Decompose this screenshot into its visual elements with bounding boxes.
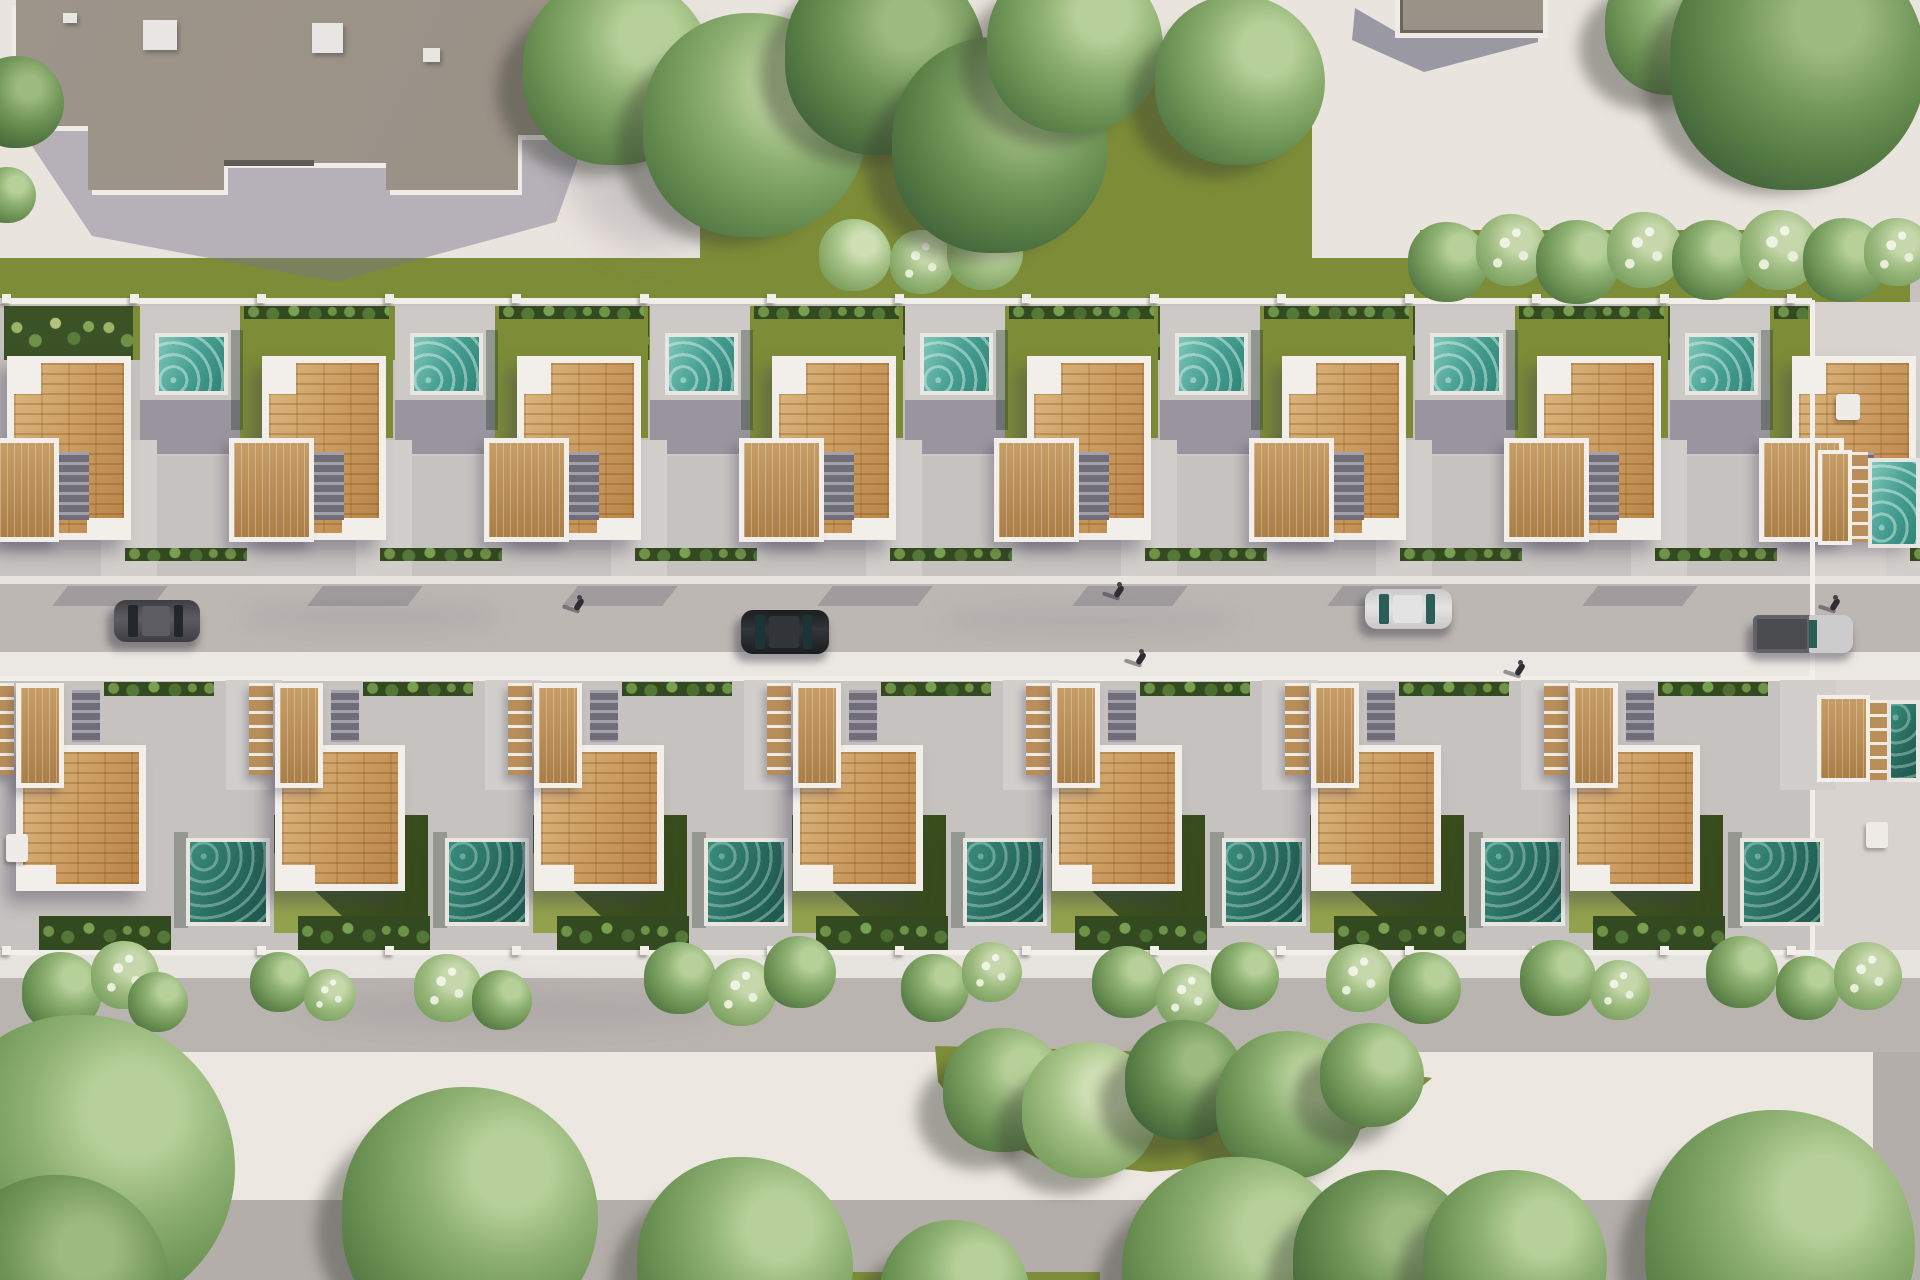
- pool-shadow-strip: [1761, 330, 1773, 430]
- entry-deck: [484, 438, 569, 542]
- bottom-pergola: [1026, 683, 1050, 775]
- bottom-pergola: [1285, 683, 1309, 775]
- bottom-front-planter: [363, 682, 473, 696]
- pool-shadow-strip: [1251, 330, 1263, 430]
- front-hedge: [635, 548, 757, 561]
- bottom-pergola: [249, 683, 273, 775]
- bottom-pergola: [1544, 683, 1568, 775]
- fence-post: [512, 946, 521, 955]
- entry-deck: [0, 438, 59, 542]
- roof-vent-3: [423, 48, 440, 62]
- bottom-roof-notch-bl: [16, 865, 56, 891]
- driveway-shadow-wedge: [1582, 586, 1698, 606]
- backyard-hedge-line: [1264, 306, 1409, 319]
- fence-post: [1022, 294, 1031, 303]
- bottom-pergola: [508, 683, 532, 775]
- backyard-hedge-line: [1009, 306, 1154, 319]
- front-hedge: [1400, 548, 1522, 561]
- pool-shadow-strip: [1506, 330, 1518, 430]
- fence-post: [895, 294, 904, 303]
- bottom-entry-deck: [1311, 683, 1359, 788]
- roof-notch-tl: [1537, 356, 1571, 394]
- bottom-pool: [704, 838, 788, 926]
- front-hedge: [1145, 548, 1267, 561]
- pedestrian-head: [1117, 582, 1122, 587]
- bush: [1590, 960, 1650, 1020]
- roof-vent-1: [143, 20, 177, 50]
- fence-post: [1022, 946, 1031, 955]
- bottom-hedge: [816, 916, 948, 950]
- bush: [304, 969, 356, 1021]
- end-lot-deck: [1817, 695, 1870, 782]
- bottom-pergola: [767, 683, 791, 775]
- bottom-entry-stairs: [331, 690, 359, 742]
- bottom-pool: [1481, 838, 1565, 926]
- car-black-suv-windshield-rear: [803, 615, 812, 649]
- roof-notch-tl: [1027, 356, 1061, 394]
- bush: [250, 952, 310, 1012]
- roof-notch-br: [1617, 518, 1661, 540]
- fence-post: [257, 294, 266, 303]
- bottom-front-planter: [1140, 682, 1250, 696]
- front-hedge: [125, 548, 247, 561]
- bottom-entry-deck: [275, 683, 323, 788]
- bush: [472, 970, 532, 1030]
- bottom-pool: [445, 838, 529, 926]
- pedestrian-head: [577, 595, 582, 600]
- fence-post: [1150, 294, 1159, 303]
- bottom-hedge: [298, 916, 430, 950]
- entry-deck: [739, 438, 824, 542]
- entry-deck: [229, 438, 314, 542]
- bottom-entry-stairs: [1367, 690, 1395, 742]
- bush: [1211, 942, 1279, 1010]
- front-hedge: [1910, 548, 1920, 561]
- driveway-shadow-wedge: [1072, 586, 1188, 606]
- bottom-roof-notch-bl: [1052, 865, 1092, 891]
- bush: [414, 954, 482, 1022]
- fence-post: [1532, 294, 1541, 303]
- bottom-roof-notch-bl: [1570, 865, 1610, 891]
- roof-notch-br: [852, 518, 896, 540]
- backyard-hedge-line: [754, 306, 899, 319]
- bottom-front-planter: [622, 682, 732, 696]
- swimming-pool: [1175, 333, 1248, 395]
- fence-post: [640, 294, 649, 303]
- tree: [1155, 0, 1325, 165]
- bush: [764, 936, 836, 1008]
- entry-stairs: [1334, 452, 1364, 520]
- car-black-suv-roof-panel: [769, 616, 799, 648]
- fence-post: [257, 946, 266, 955]
- street-shade-2: [940, 606, 1240, 636]
- bush: [819, 219, 891, 291]
- bottom-entry-stairs: [849, 690, 877, 742]
- fence-post: [2, 946, 11, 955]
- pool-shadow-strip: [741, 330, 753, 430]
- bush: [1326, 944, 1394, 1012]
- patio-table: [1866, 822, 1888, 848]
- swimming-pool: [410, 333, 483, 395]
- fence-post: [1660, 946, 1669, 955]
- fence-planter-segment: [4, 306, 133, 360]
- bush: [1706, 936, 1778, 1008]
- entry-stairs: [59, 452, 89, 520]
- bottom-entry-stairs: [72, 690, 100, 742]
- fence-post: [2, 294, 11, 303]
- car-silver-roof-panel: [1393, 595, 1422, 623]
- fence-post: [1787, 946, 1796, 955]
- fence-post: [1405, 294, 1414, 303]
- entry-deck: [1504, 438, 1589, 542]
- roof-notch-br: [597, 518, 641, 540]
- aerial-site-render: [0, 0, 1920, 1280]
- roof-notch-tl: [1282, 356, 1316, 394]
- tree: [1320, 1023, 1424, 1127]
- swimming-pool: [1430, 333, 1503, 395]
- roof-notch-br: [342, 518, 386, 540]
- fence-post: [1660, 294, 1669, 303]
- bottom-entry-deck: [1570, 683, 1618, 788]
- fence-post: [895, 946, 904, 955]
- swimming-pool: [665, 333, 738, 395]
- roof-notch-br: [1107, 518, 1151, 540]
- backyard-hedge-line: [1774, 306, 1808, 319]
- bush: [901, 954, 969, 1022]
- bottom-hedge: [1075, 916, 1207, 950]
- backyard-hedge-line: [499, 306, 644, 319]
- bottom-pool: [963, 838, 1047, 926]
- bottom-roof-notch-bl: [534, 865, 574, 891]
- bottom-roof-notch-bl: [793, 865, 833, 891]
- fence-post: [385, 294, 394, 303]
- roof-entry-line: [224, 160, 314, 166]
- bush: [128, 972, 188, 1032]
- roof-notch-br: [87, 518, 131, 540]
- bush: [1092, 946, 1164, 1018]
- bottom-entry-stairs: [590, 690, 618, 742]
- bottom-entry-deck: [1052, 683, 1100, 788]
- bottom-front-planter: [1399, 682, 1509, 696]
- car-black-suv-windshield-front: [755, 615, 765, 649]
- fence-post: [512, 294, 521, 303]
- pool-shadow-strip: [231, 330, 243, 430]
- bush: [1520, 940, 1596, 1016]
- car-dark-gray-sedan-windshield-front: [128, 605, 138, 637]
- patio-table: [1836, 394, 1860, 420]
- pedestrian-head: [1518, 660, 1523, 665]
- entry-stairs: [1589, 452, 1619, 520]
- roof-notch-tl: [262, 356, 296, 394]
- roof-notch-tl: [772, 356, 806, 394]
- front-hedge: [380, 548, 502, 561]
- bottom-front-planter: [881, 682, 991, 696]
- swimming-pool: [920, 333, 993, 395]
- bottom-front-planter: [104, 682, 214, 696]
- end-lot-pergola: [1870, 700, 1887, 780]
- bush: [1834, 942, 1902, 1010]
- bottom-entry-deck: [534, 683, 582, 788]
- roof-notch-br: [1362, 518, 1406, 540]
- bush: [1408, 222, 1488, 302]
- roof-vent-2: [312, 23, 343, 53]
- entry-deck: [994, 438, 1079, 542]
- car-silver-windshield-front: [1379, 594, 1389, 624]
- roof-vent-0: [63, 13, 77, 23]
- roof-notch-tl: [7, 356, 41, 394]
- roof-notch-tl: [1792, 356, 1826, 394]
- car-dark-gray-sedan-windshield-rear: [174, 605, 183, 637]
- driveway-shadow-wedge: [817, 586, 933, 606]
- bottom-pool: [1222, 838, 1306, 926]
- swimming-pool: [1685, 333, 1758, 395]
- fence-post: [385, 946, 394, 955]
- bush: [962, 942, 1022, 1002]
- fence-post: [130, 294, 139, 303]
- bottom-pool: [1740, 838, 1824, 926]
- small-building: [1395, 0, 1548, 38]
- front-hedge: [1655, 548, 1777, 561]
- entry-stairs: [314, 452, 344, 520]
- pickup-truck-bed: [1753, 615, 1811, 653]
- pedestrian-head: [1139, 649, 1144, 654]
- bottom-hedge: [1593, 916, 1725, 950]
- backyard-hedge-line: [244, 306, 389, 319]
- end-lot-pergola: [1852, 452, 1868, 542]
- bottom-front-planter: [1658, 682, 1768, 696]
- bottom-pool: [186, 838, 270, 926]
- end-lot-pool: [1868, 458, 1920, 548]
- pool-shadow-strip: [996, 330, 1008, 430]
- front-hedge: [890, 548, 1012, 561]
- pool-shadow-strip: [486, 330, 498, 430]
- pedestrian-head: [1833, 595, 1838, 600]
- fence-post: [640, 946, 649, 955]
- fence-post: [1787, 294, 1796, 303]
- bottom-entry-deck: [793, 683, 841, 788]
- bottom-pergola: [0, 683, 14, 775]
- pickup-truck-glass: [1809, 620, 1817, 648]
- bottom-entry-stairs: [1108, 690, 1136, 742]
- end-lot-pool: [1887, 700, 1920, 782]
- car-dark-gray-sedan-roof-panel: [142, 606, 170, 636]
- bush: [1864, 218, 1920, 286]
- entry-stairs: [1079, 452, 1109, 520]
- bush: [1776, 956, 1840, 1020]
- patio-table: [6, 834, 28, 862]
- bush: [644, 942, 716, 1014]
- bottom-entry-deck: [16, 683, 64, 788]
- entry-deck: [1249, 438, 1334, 542]
- car-silver-windshield-rear: [1426, 594, 1435, 624]
- fence-post: [1277, 294, 1286, 303]
- driveway-shadow-wedge: [307, 586, 423, 606]
- entry-stairs: [569, 452, 599, 520]
- backyard-hedge-line: [1519, 306, 1664, 319]
- end-lot-deck: [1818, 450, 1852, 545]
- fence-post: [1277, 946, 1286, 955]
- entry-stairs: [824, 452, 854, 520]
- bottom-roof-notch-bl: [275, 865, 315, 891]
- bottom-entry-stairs: [1626, 690, 1654, 742]
- roof-notch-tl: [517, 356, 551, 394]
- bush: [1389, 952, 1461, 1024]
- fence-post: [767, 294, 776, 303]
- swimming-pool: [155, 333, 228, 395]
- bottom-roof-notch-bl: [1311, 865, 1351, 891]
